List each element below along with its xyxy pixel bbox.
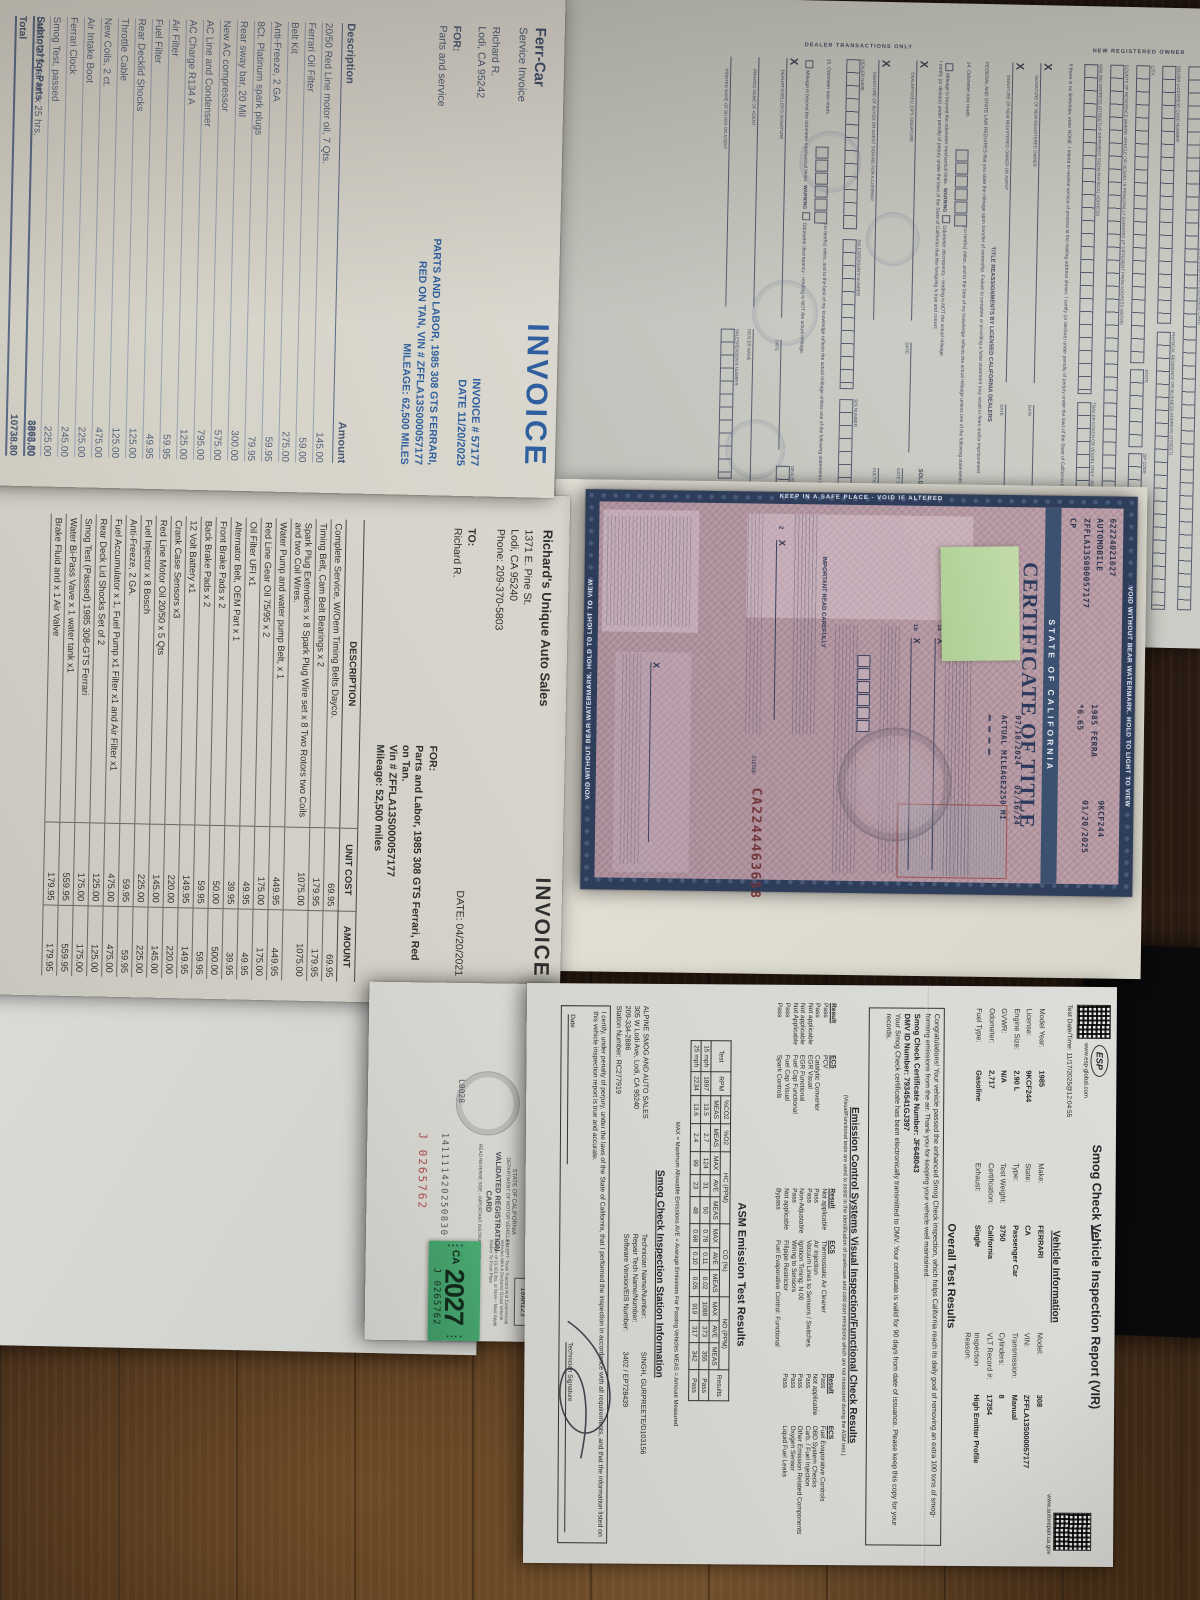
field-key: Make:: [1036, 1163, 1045, 1225]
item-description: Rear Decklid Shocks: [134, 18, 147, 111]
ecs-system: EGR Visual: [806, 1055, 814, 1089]
sticker-ca: CA: [450, 1250, 460, 1262]
item-amount: 575.00: [211, 430, 223, 461]
item-amount: 125.00: [177, 429, 189, 460]
section-label-new-registered-owner: NEW REGISTERED OWNER: [1072, 48, 1200, 63]
item-amount: 149.95: [177, 908, 192, 978]
item-amount: 220.00: [162, 908, 177, 978]
address-phone: Phone: 209-370-5803: [491, 529, 507, 631]
field-value: N/A: [1000, 1070, 1009, 1083]
vehicle-field: VIN: ZFFLA13S000057177: [1022, 1333, 1032, 1547]
vin: ZFFLA13S000057177: [1081, 518, 1091, 609]
field-value: 2,717: [987, 1070, 996, 1089]
item-unit-cost: 50.00: [209, 826, 225, 909]
asm-legend: MAX = Maximum Allowable Emissions AVE = …: [671, 984, 681, 1564]
for-value: Parts and Labor, 1985 308 GTS Ferrari, R…: [368, 744, 425, 975]
ecs-row: Not applicableThermostatic Air Cleaner: [819, 1188, 828, 1365]
ecs-col-1: ResultECS PassPCVPassCatalytic Converter…: [775, 1003, 837, 1181]
item-description: Ferrari Clock: [67, 17, 79, 74]
field-key: Inspection Reason:: [964, 1332, 982, 1394]
for-label: FOR:: [450, 26, 463, 52]
x-mark: X: [651, 662, 661, 668]
ecs-result: Not applicable: [782, 1188, 790, 1240]
ecs-row: PassPCV: [820, 1003, 829, 1180]
ecs-result: Pass: [789, 1188, 797, 1240]
item-amount: 49.95: [237, 909, 252, 979]
license-plate: 9KCF244: [1096, 800, 1106, 837]
ecs-result: Pass: [796, 1373, 804, 1425]
ecs-system: Fillpipe Restrictor: [781, 1240, 789, 1291]
customer-name: Richard R.: [487, 26, 503, 98]
asm-col-co2: %CO2: [721, 1095, 731, 1123]
item-amount: 125.00: [109, 427, 121, 458]
tech-key: Software Version/EIS Number:: [621, 1234, 631, 1352]
field-key: Odometer:: [987, 1008, 996, 1070]
address-line: Lodi, CA 95240: [505, 529, 521, 631]
item-unit-cost: 125.00: [89, 823, 105, 906]
subtotal-label: Subtotal for Parts: [33, 16, 46, 100]
ecs-row: PassCarb. / Fuel Injection: [802, 1374, 811, 1551]
item-amount: 59.95: [192, 909, 207, 979]
sig-index: 1b: [912, 624, 918, 631]
item-unit-cost: 179.95: [309, 828, 325, 911]
ecs-system: Air Injection: [812, 1240, 820, 1275]
ecs-row: Not applicableEGR Functional: [797, 1003, 806, 1180]
col-description: Description: [344, 23, 357, 84]
control-number: CA2244463658: [747, 787, 764, 899]
ecs-system: Spark Controls: [775, 1055, 783, 1099]
item-unit-cost: 49.95: [239, 827, 255, 910]
checkbox: [805, 60, 813, 68]
sig-index: 2: [777, 526, 783, 529]
company-name: Richard's Unique Auto Sales: [537, 530, 556, 707]
esp-url: www.esp-global.com: [1082, 1043, 1088, 1098]
invoice-date: DATE: 04/20/2021: [452, 890, 466, 976]
item-unit-cost: 145.00: [149, 825, 165, 908]
station-line: 305 W Lodi Ave, Lodi, CA 95240: [632, 1006, 642, 1119]
x-mark: X: [912, 638, 922, 644]
to-value: Richard R.: [451, 528, 464, 578]
ecs-system: Catalytic Converter: [813, 1055, 821, 1111]
ecs-system: PCV: [821, 1055, 829, 1069]
vehicle-field: Fuel Type: Gasoline: [965, 1008, 984, 1163]
asm-col-o2: %O2: [720, 1124, 730, 1152]
field-value: CA: [1024, 1225, 1033, 1236]
item-unit-cost: 559.95: [59, 823, 75, 906]
ecs-system: Fuel Evaporative Control: Functional: [773, 1240, 781, 1347]
document-serial: J 0265762: [415, 1132, 429, 1210]
ecs-result: Pass: [804, 1188, 812, 1240]
ecs-result: Non-Adjustable: [797, 1188, 805, 1240]
state-of-california-band: STATE OF CALIFORNIA: [1040, 508, 1061, 884]
ecs-result: Not applicable: [820, 1188, 828, 1240]
item-unit-cost: 59.95: [119, 824, 135, 907]
x-mark: X: [787, 58, 799, 66]
item-amount: 500.00: [207, 909, 222, 979]
ecs-result: Bypass: [774, 1188, 782, 1240]
ecs-system: Liquid Fuel Leaks: [780, 1425, 788, 1477]
item-amount: 475.00: [102, 907, 117, 977]
ecs-system: Thermostatic Air Cleaner: [819, 1240, 827, 1313]
to-label: TO:: [465, 528, 477, 546]
item-unit-cost: 69.95: [324, 828, 340, 911]
item-unit-cost: 175.00: [74, 823, 90, 906]
ecs-result: Pass: [813, 1003, 821, 1055]
tech-row: Software Version/EIS Number:3402 / EP728…: [621, 1234, 632, 1455]
item-description: New Coils, 2 ct.: [100, 18, 113, 88]
year-sticker-2027: ▪▪▪▪ CA 2027 ▪▪▪▪ J 0265762: [428, 1241, 481, 1342]
field-key: State:: [1024, 1163, 1033, 1225]
report-title: Smog Check Vehicle Inspection Report (VI…: [1087, 1047, 1104, 1507]
ecs-result: Not Applicable: [791, 1003, 799, 1055]
ecs-col-result: Result: [830, 1003, 837, 1055]
vehicle-field: Transmission: Manual: [1009, 1333, 1019, 1547]
vehicle-field: VLT Record #: 17354: [984, 1332, 994, 1546]
ecs-system: OBD System Checks: [810, 1426, 818, 1488]
ecs-row: PassCatalytic Converter: [812, 1003, 821, 1180]
checkbox: [802, 213, 810, 221]
fine-print-block: [619, 654, 642, 864]
ecs-system: Carb. / Fuel Injection: [803, 1426, 811, 1487]
company-address: 1371 E. Pine St. Lodi, CA 95240 Phone: 2…: [491, 529, 535, 631]
item-unit-cost: 149.95: [179, 825, 195, 908]
item-unit-cost: 175.00: [254, 827, 270, 910]
asm-col-co: CO (%): [719, 1224, 730, 1297]
item-description: Throttle Cable: [118, 18, 130, 81]
item-amount: 275.00: [279, 431, 291, 462]
item-description: Air Intake Boot: [84, 17, 96, 83]
item-amount: 559.95: [57, 906, 72, 976]
ecs-row: PassFuel Evaporative Controls: [817, 1374, 826, 1551]
vehicle-info-grid: Model Year: 1985 Make: FERRARI Model: 30…: [963, 1008, 1047, 1547]
invoice-title: INVOICE: [517, 323, 554, 468]
field-value: 9KCF244: [1025, 1070, 1034, 1102]
item-description: New AC compressor: [219, 20, 232, 111]
ecs-row: Not applicableOBD System Checks: [810, 1374, 819, 1551]
smog-check-vir: ESP www.esp-global.com Test Date/Time: 1…: [523, 983, 1117, 1567]
item-amount: 179.95: [42, 905, 57, 975]
date-caption: DATE: [904, 342, 909, 353]
invoice-number: INVOICE # 57177: [467, 378, 483, 466]
col-amount: AMOUNT: [337, 912, 355, 982]
photo-of-documents-on-table: Any change of registered owner or lienho…: [0, 0, 1200, 1600]
item-amount: 225.00: [132, 907, 147, 977]
invoice-date: DATE 11/20/2025: [453, 378, 469, 466]
field-key: Transmission:: [1010, 1333, 1019, 1395]
test-datetime: Test Date/Time: 11/17/2025@12:04:55: [1065, 1005, 1073, 1118]
mileage-label: ACTUAL MILEAGE: [999, 715, 1009, 785]
item-amount: 245.00: [58, 426, 70, 457]
field-key: GVWR:: [1000, 1008, 1009, 1070]
code-cp: CP: [1068, 518, 1077, 529]
x-mark: X: [1041, 63, 1053, 71]
odometer-label: 15. Odometer now reads: [824, 59, 831, 114]
item-amount: 125.00: [87, 906, 102, 976]
tech-row: Technician Name/Number:SINGH, GURPREETE/…: [639, 1234, 650, 1455]
ecs-system: Fuel Cap Visual: [783, 1055, 791, 1101]
comb-field: [1128, 369, 1144, 447]
ecs-system: Ignition Timing: N 00: [796, 1240, 804, 1300]
document-number: 62224021627: [1108, 518, 1118, 577]
item-unit-cost: 220.00: [164, 825, 180, 908]
dealer-name-caption: DEALER NAME: [746, 329, 752, 361]
field-label: STATE: [1142, 369, 1149, 447]
ecs-row: Not ApplicableFuel Cap Functional: [790, 1003, 799, 1180]
asm-col-test: Test: [711, 1041, 731, 1072]
issue-date: 07/18/2024: [1013, 715, 1023, 765]
item-description: Fuel Filter: [152, 19, 164, 64]
technician-block: Technician Name/Number:SINGH, GURPREETE/…: [621, 1234, 650, 1455]
ecs-row: PassSpark Controls: [775, 1003, 784, 1180]
ecs-system: EGR Functional: [798, 1055, 806, 1102]
vehicle-field: Model: 308: [1034, 1333, 1044, 1547]
sticker-edge-marks: ▪▪▪▪: [445, 1332, 463, 1341]
item-amount: 145.00: [313, 432, 325, 463]
field-value: Manual: [1010, 1395, 1019, 1421]
field-key: License:: [1025, 1008, 1034, 1070]
ecs-col-ecs: ECS: [829, 1055, 836, 1069]
ecs-col-result: Result: [827, 1374, 834, 1426]
asm-col-hc: HC (PPM): [720, 1152, 731, 1225]
ecs-col-ecs: ECS: [828, 1240, 835, 1254]
overall-results-header: Overall Test Results: [943, 986, 959, 1566]
checkbox: [945, 63, 953, 71]
tech-value: SINGH, GURPREETE/D103156: [639, 1352, 649, 1455]
field-value: 3750: [999, 1225, 1008, 1242]
ecs-row: PassOther Emission Related Components: [795, 1373, 804, 1550]
item-description: Air Filter: [169, 19, 181, 56]
ecs-system: Fuel Evaporative Controls: [818, 1426, 826, 1502]
item-description: Anti-Freeze, 2 GA: [270, 22, 283, 102]
notary-stamp-watermark: [751, 279, 818, 346]
item-amount: 225.00: [41, 426, 53, 457]
date-caption: DATE: [1027, 405, 1032, 416]
subtotal-amount: 3863.80: [25, 420, 37, 456]
odometer-date: 02/16/24: [1012, 785, 1022, 825]
green-sticky-note: [941, 546, 1020, 661]
line-items: 20/50 Red Line motor oil, 7 Qts. 145.00 …: [23, 16, 339, 463]
item-description: 20/50 Red Line motor oil, 7 Qts.: [320, 23, 334, 164]
item-amount: 145.00: [147, 908, 162, 978]
sticker-year: 2027: [438, 1262, 470, 1332]
vehicle-field: GVWR: N/A: [999, 1008, 1009, 1163]
item-description: Belt Kit: [288, 22, 300, 54]
item-amount: 69.95: [322, 911, 337, 981]
ecs-system: Fuel Cap Functional: [790, 1055, 798, 1114]
col-amount: Amount: [335, 422, 348, 464]
invoice-title: INVOICE: [528, 877, 554, 978]
field-key: Model Year:: [1037, 1009, 1046, 1071]
vehicle-field: Cylinders: 8: [997, 1333, 1007, 1547]
tech-value: 3402 / EP728439: [621, 1352, 630, 1408]
total-label: Total: [17, 16, 29, 39]
item-unit-cost: 1075.00: [284, 827, 310, 910]
odometer-reading: 2250 MI: [998, 785, 1007, 820]
ecs-result: Pass: [803, 1374, 811, 1426]
company-name: Ferr-Car: [531, 27, 549, 87]
date-caption: DATE: [999, 404, 1004, 415]
light-panel: [746, 513, 973, 620]
item-amount: 300.00: [228, 430, 240, 461]
registration-number: 141111420250830: [438, 1133, 449, 1237]
ecs-row: BypassFuel Evaporative Control: Function…: [773, 1188, 782, 1365]
item-amount: 59.95: [262, 436, 274, 461]
asm-col-rpm: RPM: [711, 1072, 731, 1096]
ecs-col-result: Result: [828, 1188, 835, 1240]
tech-key: Technician Name/Number:: [639, 1234, 649, 1352]
vehicle-field: Inspection Reason: High Emitter Profile: [963, 1332, 982, 1546]
technician-signature: [549, 1313, 620, 1463]
item-amount: 39.95: [222, 909, 237, 979]
ecs-col-3: ResultECS PassFuel Evaporative ControlsN…: [772, 1373, 834, 1551]
vehicle-field: Type: Passenger Car: [1011, 1163, 1021, 1333]
field-key: VLT Record #:: [985, 1332, 994, 1394]
ecs-result: Not applicable: [811, 1374, 819, 1426]
item-unit-cost: 179.95: [44, 822, 60, 905]
field-value: Gasoline: [966, 1070, 984, 1101]
ecs-row: PassVacuum Lines to Sensors / Switches: [804, 1188, 813, 1365]
qr-code-left: [1077, 1005, 1111, 1039]
ecs-row: Not applicableFillpipe Restrictor: [781, 1188, 790, 1365]
dashes: [988, 715, 991, 755]
item-description: AC Charge R134 A: [185, 20, 198, 105]
ecs-result: Pass: [818, 1374, 826, 1426]
field-key: Exhaust:: [965, 1163, 983, 1225]
item-amount: 795.00: [194, 429, 206, 460]
fine-print-block: [790, 514, 817, 734]
item-description: 8Ct. Platinum spark plugs: [252, 21, 266, 135]
item-amount: 225.00: [75, 427, 87, 458]
item-amount: 79.95: [245, 436, 257, 461]
for-value: Parts and service: [435, 25, 449, 106]
address-line: 1371 E. Pine St.: [519, 529, 535, 631]
vehicle-field: Make: FERRARI: [1036, 1163, 1046, 1333]
overall-results-box: Congratulations! Your vehicle passed the…: [865, 1007, 945, 1546]
field-value: Passenger Car: [1011, 1225, 1020, 1277]
vehicle-field: Engine Size: 2.90 L: [1012, 1008, 1022, 1163]
fine-print-block: [942, 626, 971, 876]
customer-city: Lodi, CA 95242: [473, 26, 489, 98]
vehicle-field: Odometer: 2,717: [987, 1008, 997, 1163]
year-make: 1985 FERRA: [1089, 704, 1099, 757]
checkbox: [942, 215, 950, 223]
section-label-dealer-transactions: DEALER TRANSACTIONS ONLY: [744, 41, 974, 58]
station-line: Station Number: RC277919: [614, 1006, 624, 1119]
odometer-boxes: [855, 655, 875, 733]
item-amount: 449.95: [267, 910, 282, 980]
item-description: Smog Test, passed: [49, 17, 62, 102]
asm-results-table: Test RPM %CO2 %O2 HC (PPM) CO (%) NO (PP…: [688, 1040, 732, 1402]
field-value: 2.90 L: [1012, 1070, 1021, 1091]
odometer-label: 14. Odometer now reads: [964, 62, 971, 117]
ecs-result: Pass: [775, 1003, 783, 1055]
ecs-system: Wiring to Sensors: [789, 1240, 797, 1292]
item-unit-cost: 39.95: [224, 826, 240, 909]
vehicle-field: Exhaust: Single: [964, 1163, 983, 1333]
item-amount: 1075.00: [282, 910, 307, 980]
important-read-carefully: IMPORTANT READ CAREFULLY: [820, 556, 827, 647]
field-value: Single: [965, 1225, 983, 1247]
ecs-row: PassFuel Cap Visual: [782, 1003, 791, 1180]
transmitted-note: Your Smog Check certificate has been ele…: [881, 1013, 902, 1539]
field-value: ZFFLA13S000057177: [1022, 1395, 1032, 1469]
title-body: 62224021627 AUTOMOBILE ZFFLA13S000057177…: [594, 501, 1123, 884]
item-amount: 125.00: [126, 428, 138, 459]
field-key: Model:: [1035, 1333, 1044, 1395]
field-key: Engine Size:: [1012, 1008, 1021, 1070]
vehicle-field: State: CA: [1023, 1163, 1033, 1333]
vehicle-info-header: Vehicle Information: [1048, 987, 1063, 1567]
ecs-result: Pass: [780, 1373, 788, 1425]
date-line: Date: [567, 1014, 576, 1164]
sticker-serial: J 0265762: [431, 1263, 442, 1331]
richards-auto-sales-invoice: Richard's Unique Auto Sales 1371 E. Pine…: [0, 484, 570, 1006]
field-value: FERRARI: [1036, 1225, 1045, 1258]
fine-print-block: [606, 515, 692, 626]
field-value: California: [986, 1225, 995, 1259]
odometer-boxes: [952, 149, 972, 227]
congratulations-text: Congratulations! Your vehicle passed the…: [920, 1014, 941, 1540]
line-items: Complete Service, W/Oem Timing Belts Day…: [41, 513, 346, 981]
item-unit-cost: 225.00: [134, 824, 150, 907]
field-value: High Emitter Profile: [963, 1394, 981, 1463]
item-unit-cost: 475.00: [104, 824, 120, 907]
item-amount: 175.00: [252, 910, 267, 980]
ecs-system: Oxygen Sensor: [788, 1425, 796, 1471]
ecs-result: Not applicable: [798, 1003, 806, 1055]
customer-block: Richard R. Lodi, CA 95242: [473, 26, 503, 98]
item-description: Rear sway bar, 20 Mil: [236, 21, 249, 117]
ecs-col-ecs: ECS: [827, 1426, 834, 1440]
code: L0028: [457, 1079, 466, 1103]
field-value: 1985: [1037, 1071, 1046, 1088]
field-key: Cylinders:: [998, 1333, 1007, 1395]
item-amount: 179.95: [307, 911, 322, 981]
x-mark: X: [917, 61, 929, 69]
ecs-row: PassLiquid Fuel Leaks: [780, 1373, 789, 1550]
field-value: 8: [998, 1395, 1007, 1399]
items-table: DESCRIPTION UNIT COST AMOUNT Complete Se…: [41, 513, 365, 981]
item-amount: 475.00: [92, 427, 104, 458]
item-amount: 175.00: [72, 906, 87, 976]
field-value: 17354: [985, 1394, 994, 1415]
station-line: ALPINE SMOG AND AUTO SALES: [641, 1006, 651, 1119]
field-key: Certification:: [986, 1163, 995, 1225]
vehicle-description: PARTS AND LABOR, 1985 308 GTS FERRARI, R…: [397, 238, 444, 466]
asm-col-no: NO (PPM): [719, 1297, 730, 1370]
for-label: FOR:: [426, 745, 439, 771]
body-type: AUTOMOBILE: [1095, 518, 1105, 571]
vehicle-field: Certification: California: [986, 1163, 996, 1333]
vehicle-field: Model Year: 1985: [1037, 1009, 1047, 1164]
field-key: VIN:: [1023, 1333, 1032, 1395]
ecs-row: PassWiring to Sensors: [788, 1188, 797, 1365]
field-value: 308: [1035, 1395, 1044, 1407]
asm-col-results: Results: [709, 1370, 729, 1401]
field-key: Type:: [1011, 1163, 1020, 1225]
ecs-system: Other Emission Related Components: [795, 1425, 803, 1534]
invoice-subtitle: Service Invoice: [515, 27, 529, 102]
ecs-result: Pass: [788, 1373, 796, 1425]
invoice-meta: INVOICE # 57177 DATE 11/20/2025: [453, 378, 483, 467]
x-mark: X: [879, 60, 891, 68]
ecs-result: Pass: [783, 1003, 791, 1055]
except-note: EXCEPT: Truck Tractors And Commercial Ve…: [487, 1239, 510, 1335]
item-amount: 49.95: [143, 434, 155, 459]
ecs-results: ResultECS PassPCVPassCatalytic Converter…: [772, 1003, 837, 1551]
fee: *6.65: [1075, 704, 1084, 731]
field-key: Fuel Type:: [966, 1008, 984, 1070]
